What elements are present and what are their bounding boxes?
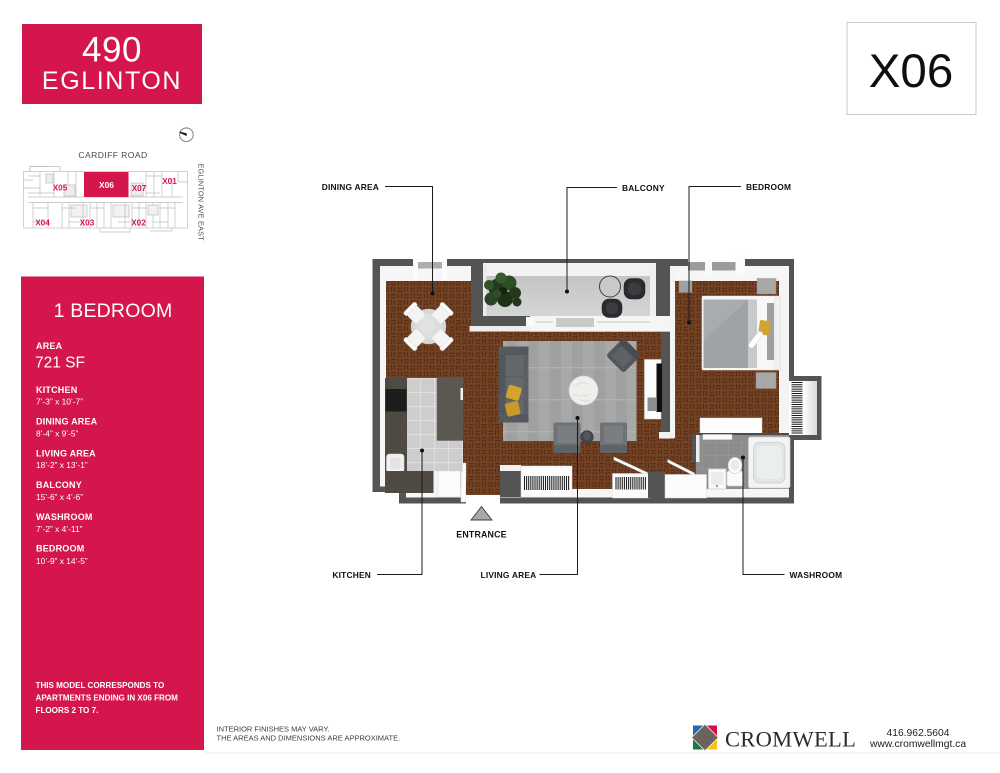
svg-text:BEDROOM: BEDROOM — [36, 544, 84, 554]
svg-text:X01: X01 — [162, 177, 177, 186]
svg-text:THE AREAS AND DIMENSIONS ARE A: THE AREAS AND DIMENSIONS ARE APPROXIMATE… — [217, 734, 401, 743]
svg-text:FLOORS 2 TO 7.: FLOORS 2 TO 7. — [36, 706, 99, 715]
svg-text:LIVING AREA: LIVING AREA — [36, 448, 96, 458]
svg-text:490: 490 — [82, 31, 142, 70]
svg-text:DINING AREA: DINING AREA — [36, 417, 98, 427]
svg-text:CARDIFF ROAD: CARDIFF ROAD — [78, 150, 147, 160]
svg-text:WASHROOM: WASHROOM — [790, 570, 843, 580]
svg-text:8’-4” x 9’-5”: 8’-4” x 9’-5” — [36, 428, 79, 438]
svg-text:X04: X04 — [35, 219, 50, 228]
svg-text:INTERIOR FINISHES MAY VARY.: INTERIOR FINISHES MAY VARY. — [217, 725, 330, 734]
svg-text:www.cromwellmgt.ca: www.cromwellmgt.ca — [869, 739, 966, 750]
svg-text:X07: X07 — [132, 184, 147, 193]
svg-text:7’-2” x 4’-11”: 7’-2” x 4’-11” — [36, 524, 83, 534]
svg-text:LIVING AREA: LIVING AREA — [481, 570, 537, 580]
svg-text:721 SF: 721 SF — [35, 355, 85, 372]
svg-text:BALCONY: BALCONY — [622, 183, 665, 193]
svg-text:WASHROOM: WASHROOM — [36, 512, 93, 522]
svg-text:THIS MODEL CORRESPONDS TO: THIS MODEL CORRESPONDS TO — [36, 681, 165, 690]
svg-text:X06: X06 — [99, 180, 114, 190]
svg-text:10’-9” x 14’-5”: 10’-9” x 14’-5” — [36, 556, 88, 566]
svg-text:KITCHEN: KITCHEN — [332, 570, 371, 580]
svg-text:KITCHEN: KITCHEN — [36, 385, 77, 395]
svg-text:X02: X02 — [131, 219, 146, 228]
svg-text:AREA: AREA — [36, 341, 63, 351]
svg-text:CROMWELL: CROMWELL — [725, 727, 856, 752]
svg-text:X05: X05 — [53, 184, 68, 193]
svg-text:APARTMENTS ENDING IN X06 FROM: APARTMENTS ENDING IN X06 FROM — [36, 693, 179, 702]
svg-text:EGLINTON AVE EAST: EGLINTON AVE EAST — [197, 164, 206, 242]
svg-text:BEDROOM: BEDROOM — [746, 182, 791, 192]
svg-text:DINING AREA: DINING AREA — [322, 182, 379, 192]
svg-text:X03: X03 — [80, 219, 95, 228]
svg-text:ENTRANCE: ENTRANCE — [456, 530, 506, 540]
svg-text:416.962.5604: 416.962.5604 — [887, 728, 950, 739]
svg-text:X06: X06 — [869, 45, 954, 98]
svg-text:BALCONY: BALCONY — [36, 480, 82, 490]
svg-text:1 BEDROOM: 1 BEDROOM — [54, 300, 173, 322]
svg-text:7’-3” x 10’-7”: 7’-3” x 10’-7” — [36, 397, 83, 407]
svg-text:EGLINTON: EGLINTON — [42, 67, 182, 95]
svg-text:18’-2” x 13’-1”: 18’-2” x 13’-1” — [36, 460, 88, 470]
svg-text:15’-6” x 4’-6”: 15’-6” x 4’-6” — [36, 492, 83, 502]
